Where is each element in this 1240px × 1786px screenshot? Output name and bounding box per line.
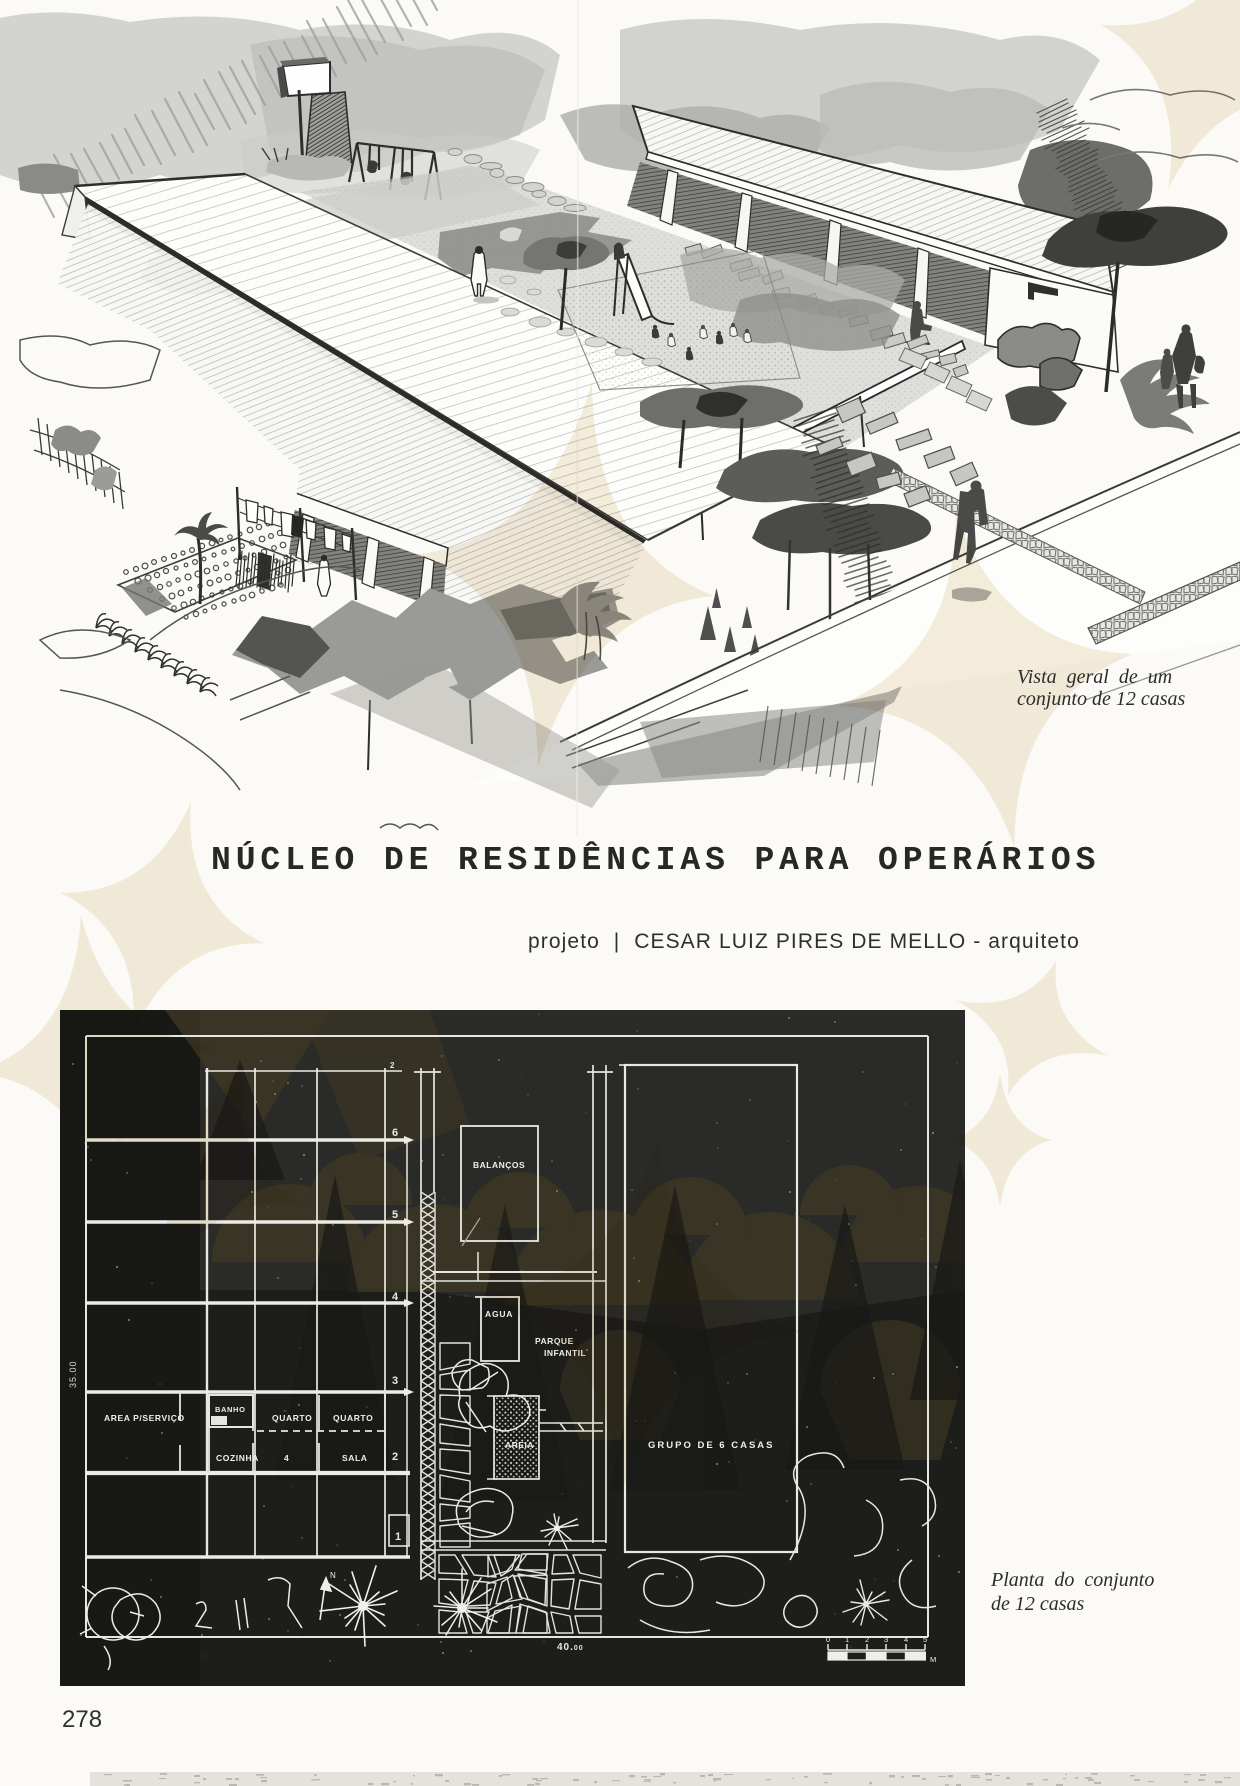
svg-text:5: 5 [392,1209,398,1221]
svg-text:N: N [330,1571,336,1580]
svg-text:3: 3 [884,1635,888,1644]
svg-text:BALANÇOS: BALANÇOS [473,1160,525,1170]
svg-text:2: 2 [390,1061,395,1070]
svg-text:QUARTO: QUARTO [272,1413,312,1423]
svg-text:4: 4 [392,1291,399,1303]
svg-text:COZINHA: COZINHA [216,1453,259,1463]
svg-text:3: 3 [392,1375,398,1387]
svg-text:4: 4 [904,1635,908,1644]
svg-text:5: 5 [923,1635,927,1644]
svg-text:0: 0 [826,1635,830,1644]
svg-text:M: M [930,1655,936,1664]
svg-text:BANHO: BANHO [215,1405,246,1414]
svg-text:6: 6 [392,1127,398,1139]
svg-text:2: 2 [392,1451,398,1463]
svg-text:QUARTO: QUARTO [333,1413,373,1423]
svg-text:35.00: 35.00 [68,1360,78,1388]
svg-text:AREIA: AREIA [505,1440,534,1450]
svg-text:1: 1 [395,1531,401,1543]
svg-text:SALA: SALA [342,1453,368,1463]
svg-text:2: 2 [865,1635,869,1644]
svg-text:1: 1 [845,1635,849,1644]
svg-text:AREA P/SERVIÇO: AREA P/SERVIÇO [104,1413,185,1423]
svg-text:GRUPO DE 6 CASAS: GRUPO DE 6 CASAS [648,1440,775,1451]
svg-text:4: 4 [284,1453,289,1463]
